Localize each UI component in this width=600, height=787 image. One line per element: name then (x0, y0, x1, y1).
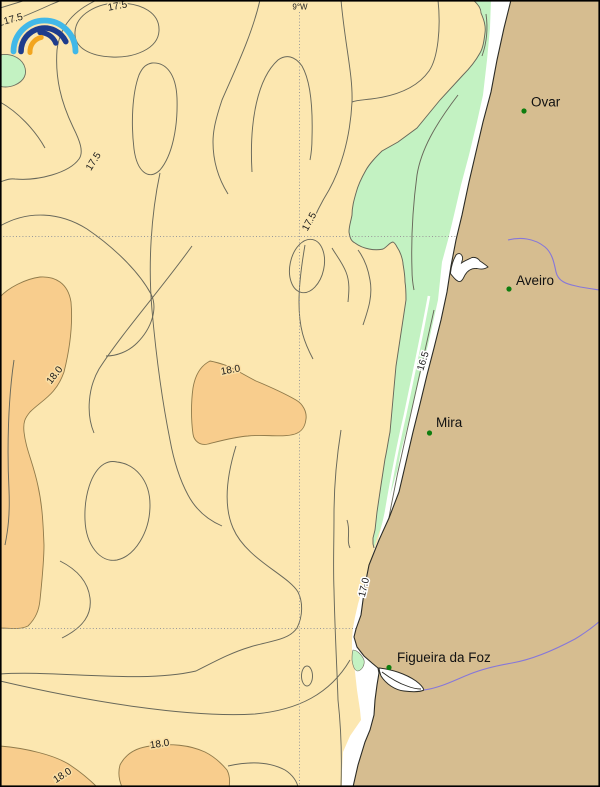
svg-text:Figueira da Foz: Figueira da Foz (397, 650, 491, 665)
svg-text:Ovar: Ovar (531, 95, 561, 110)
svg-text:9°W: 9°W (292, 3, 308, 12)
svg-text:Mira: Mira (436, 415, 463, 430)
svg-text:Aveiro: Aveiro (516, 273, 554, 288)
